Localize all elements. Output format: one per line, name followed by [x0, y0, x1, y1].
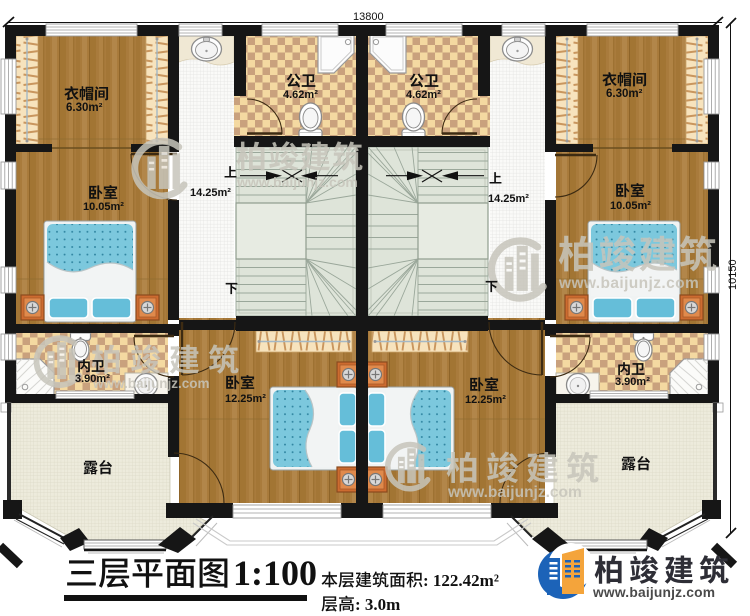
svg-text:4.62m²: 4.62m²	[406, 89, 441, 101]
svg-text:: 122.42m²: : 122.42m²	[423, 571, 499, 590]
svg-text:10.05m²: 10.05m²	[610, 200, 651, 212]
svg-text:1:100: 1:100	[233, 553, 317, 593]
svg-text:www.baijunjz.com: www.baijunjz.com	[592, 585, 715, 600]
svg-text:13800: 13800	[353, 11, 384, 23]
svg-text:www.baijunjz.com: www.baijunjz.com	[558, 275, 699, 292]
svg-text:: 3.0m: : 3.0m	[355, 595, 400, 614]
svg-text:10.05m²: 10.05m²	[83, 201, 124, 213]
svg-text:3.90m²: 3.90m²	[75, 373, 110, 385]
svg-text:3.90m²: 3.90m²	[615, 376, 650, 388]
svg-text:6.30m²: 6.30m²	[606, 88, 643, 100]
svg-text:www.baijunjz.com: www.baijunjz.com	[447, 484, 582, 501]
svg-text:www.baijunjz.com: www.baijunjz.com	[236, 174, 358, 190]
svg-text:6.30m²: 6.30m²	[66, 102, 103, 114]
svg-text:10150: 10150	[727, 259, 739, 290]
svg-text:12.25m²: 12.25m²	[225, 393, 266, 405]
svg-text:14.25m²: 14.25m²	[190, 187, 231, 199]
svg-text:12.25m²: 12.25m²	[465, 394, 506, 406]
svg-text:4.62m²: 4.62m²	[283, 89, 318, 101]
svg-text:14.25m²: 14.25m²	[488, 193, 529, 205]
